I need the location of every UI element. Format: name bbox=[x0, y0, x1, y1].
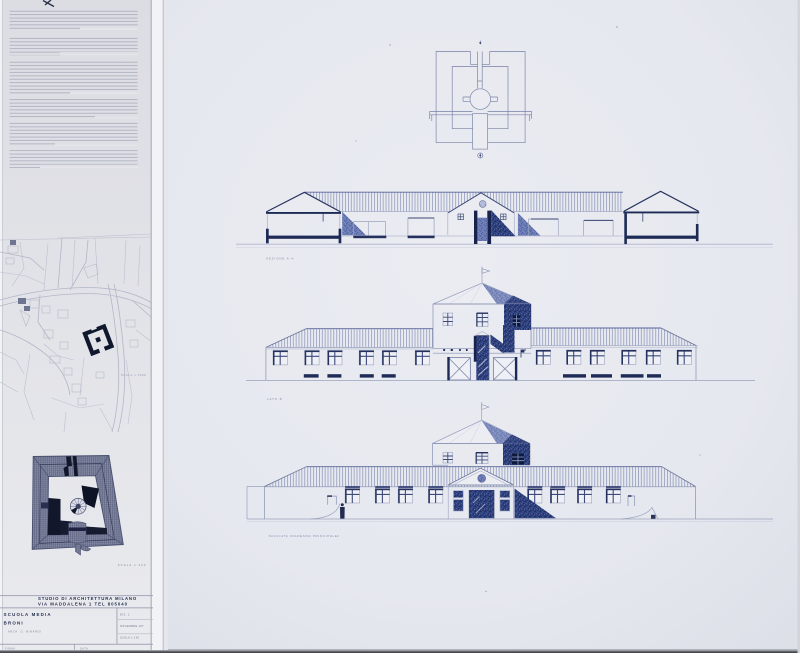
svg-text:SCALA 1:2000: SCALA 1:2000 bbox=[121, 373, 146, 377]
svg-text:DATA: DATA bbox=[80, 648, 88, 651]
svg-text:VIA MADDALENA 1 TEL 805040: VIA MADDALENA 1 TEL 805040 bbox=[38, 602, 128, 607]
svg-text:FIRMA: FIRMA bbox=[5, 648, 15, 651]
svg-text:SCALA 1:100: SCALA 1:100 bbox=[120, 636, 140, 639]
svg-text:FACCIATA INGRESSO PRINCIPALE: FACCIATA INGRESSO PRINCIPALE bbox=[269, 534, 338, 538]
svg-text:SCALA 1:200: SCALA 1:200 bbox=[118, 563, 147, 567]
svg-text:STUDIO DI ARCHITETTURA MILANO: STUDIO DI ARCHITETTURA MILANO bbox=[38, 596, 137, 601]
svg-text:SCUOLA MEDIA: SCUOLA MEDIA bbox=[4, 612, 52, 617]
svg-text:NOVEMBRE 197: NOVEMBRE 197 bbox=[120, 625, 144, 628]
svg-text:ARCH. G. MINARDI: ARCH. G. MINARDI bbox=[8, 630, 42, 633]
svg-text:DIS. 2: DIS. 2 bbox=[120, 614, 130, 617]
svg-text:BRONI: BRONI bbox=[4, 620, 24, 625]
svg-text:LATO B: LATO B bbox=[267, 397, 283, 401]
svg-text:SEZIONE A-A: SEZIONE A-A bbox=[266, 256, 294, 260]
